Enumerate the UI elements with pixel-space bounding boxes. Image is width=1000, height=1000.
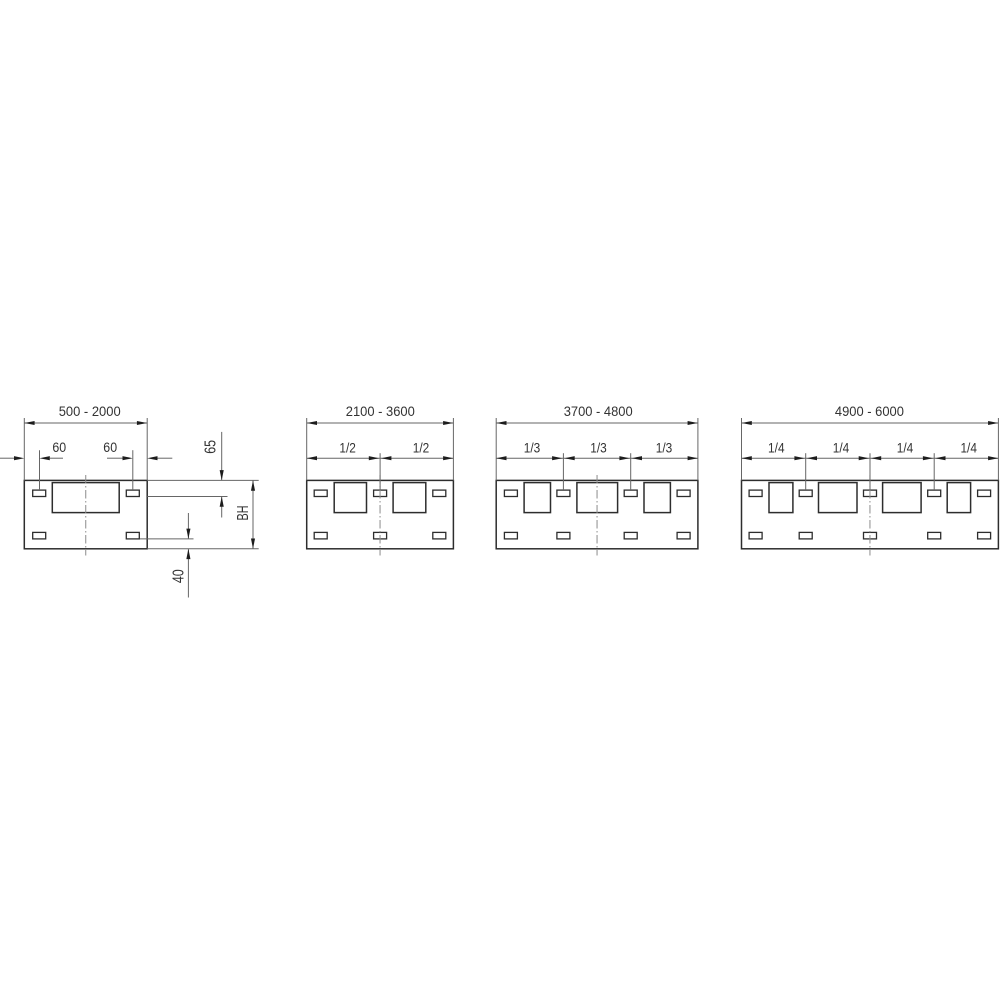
svg-text:2100 - 3600: 2100 - 3600	[346, 403, 415, 419]
svg-text:1/4: 1/4	[768, 441, 785, 456]
svg-text:40: 40	[171, 569, 188, 583]
svg-text:1/2: 1/2	[339, 441, 356, 456]
svg-text:1/4: 1/4	[897, 441, 914, 456]
svg-text:60: 60	[103, 440, 117, 455]
svg-text:65: 65	[202, 440, 219, 454]
svg-text:3700 - 4800: 3700 - 4800	[564, 403, 633, 419]
svg-text:1/3: 1/3	[656, 441, 673, 456]
svg-text:1/2: 1/2	[413, 441, 430, 456]
svg-text:BH: BH	[235, 506, 252, 521]
svg-text:1/3: 1/3	[524, 441, 541, 456]
svg-text:1/4: 1/4	[833, 441, 850, 456]
svg-text:500 - 2000: 500 - 2000	[59, 403, 121, 419]
svg-text:60: 60	[52, 440, 66, 455]
svg-text:4900 - 6000: 4900 - 6000	[835, 403, 904, 419]
svg-text:1/3: 1/3	[590, 441, 607, 456]
svg-text:1/4: 1/4	[960, 441, 977, 456]
